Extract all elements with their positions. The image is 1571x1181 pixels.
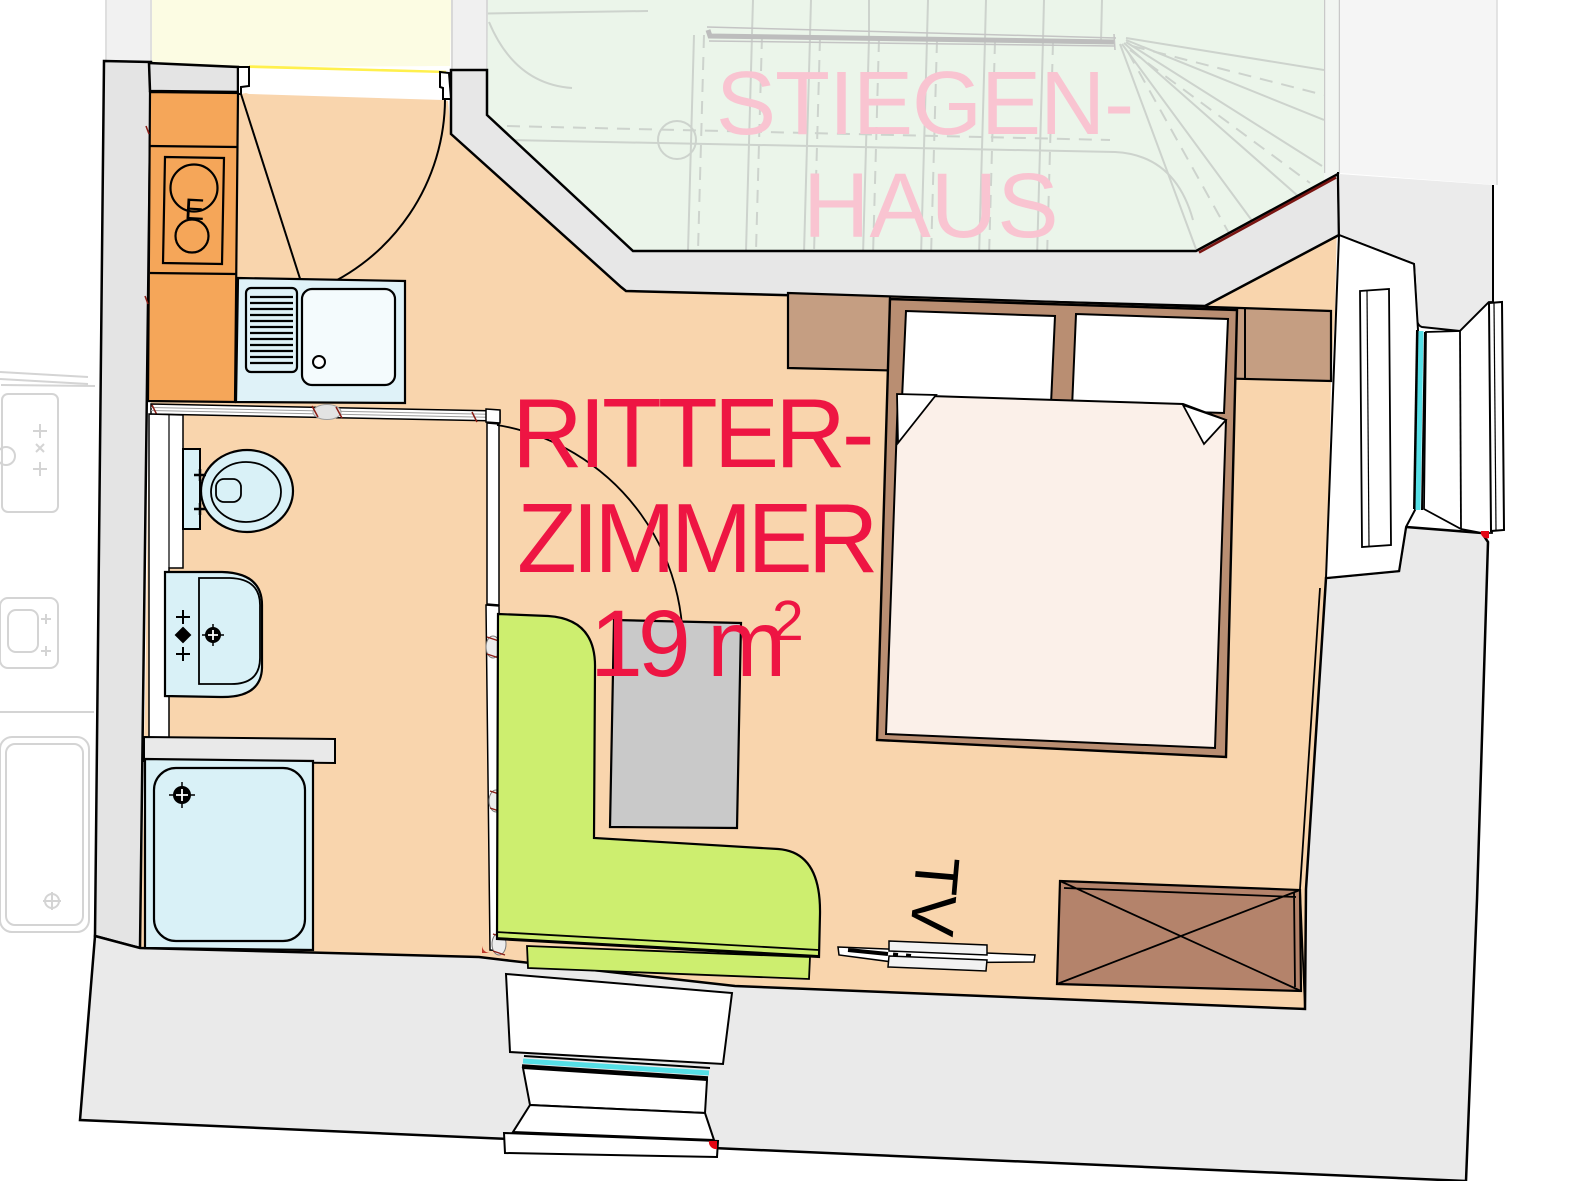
svg-text:TV: TV	[896, 854, 972, 940]
svg-text:19 m: 19 m	[590, 591, 781, 697]
svg-text:E: E	[184, 193, 206, 227]
svg-text:RITTER-: RITTER-	[512, 378, 871, 488]
svg-text:HAUS: HAUS	[803, 155, 1059, 257]
svg-text:STIEGEN-: STIEGEN-	[716, 54, 1133, 154]
svg-text:ZIMMER: ZIMMER	[517, 483, 875, 593]
svg-text:2: 2	[772, 589, 804, 653]
